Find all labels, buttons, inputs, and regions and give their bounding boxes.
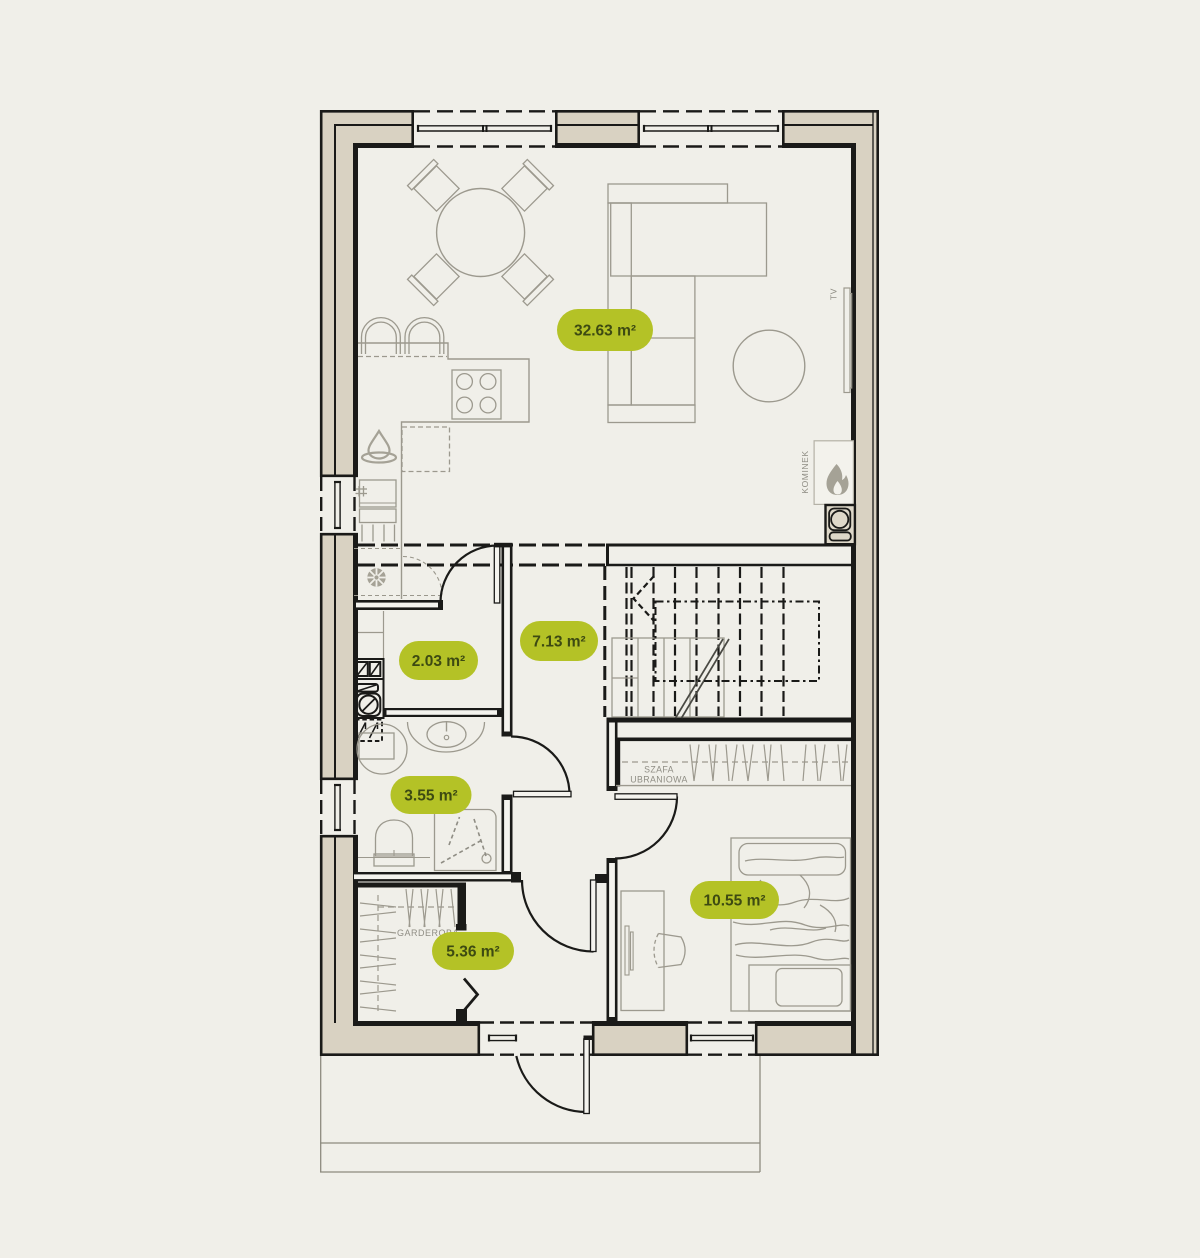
svg-text:TV: TV (829, 288, 839, 300)
svg-text:2.03 m²: 2.03 m² (412, 653, 465, 670)
svg-text:UBRANIOWA: UBRANIOWA (630, 775, 688, 785)
svg-text:5.36 m²: 5.36 m² (446, 944, 499, 961)
svg-text:10.55 m²: 10.55 m² (703, 893, 765, 910)
svg-text:32.63 m²: 32.63 m² (574, 323, 636, 340)
svg-text:SZAFA: SZAFA (644, 765, 674, 775)
svg-text:3.55 m²: 3.55 m² (404, 788, 457, 805)
svg-text:7.13 m²: 7.13 m² (532, 634, 585, 651)
svg-text:KOMINEK: KOMINEK (800, 450, 810, 493)
